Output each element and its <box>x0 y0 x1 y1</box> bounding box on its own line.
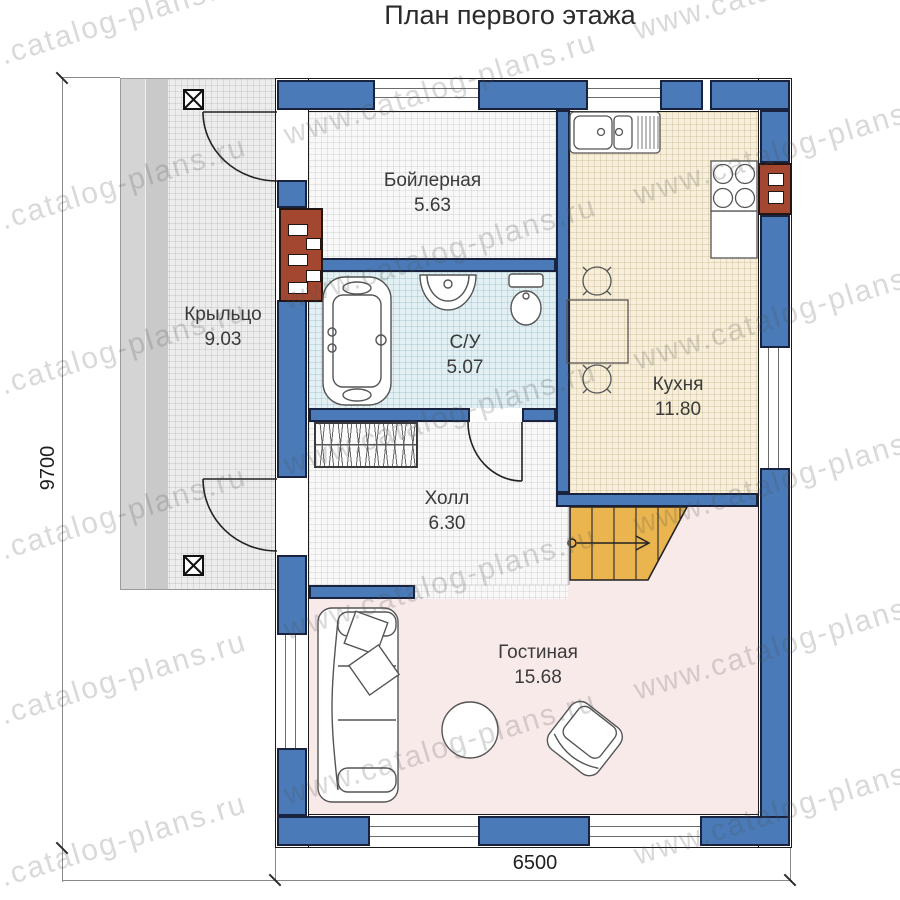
room-area: 9.03 <box>148 327 298 352</box>
window <box>588 97 660 98</box>
wall-segment <box>478 80 588 110</box>
room-area: 5.63 <box>340 193 525 218</box>
wall-interior-kitchen-stairs <box>556 493 758 507</box>
window <box>768 348 769 468</box>
chimney-block-left <box>279 208 323 302</box>
dimension-extension <box>62 77 120 78</box>
watermark-text: www.catalog-plans.ru <box>0 787 251 900</box>
wall-segment <box>760 215 790 348</box>
window <box>375 97 478 98</box>
room-name: Гостиная <box>448 640 628 665</box>
wardrobe <box>314 422 418 468</box>
wall-interior-kitchen <box>556 110 570 493</box>
wall-interior-bath-hall <box>522 408 556 422</box>
wall-segment <box>277 180 307 208</box>
room-name: Бойлерная <box>340 168 525 193</box>
room-floor-kitchen <box>570 112 758 493</box>
wall-segment <box>710 80 790 110</box>
window <box>375 88 478 89</box>
dimension-label-width: 6500 <box>495 852 575 876</box>
wall-interior-boiler-bath <box>309 258 556 272</box>
room-area: 11.80 <box>598 397 758 422</box>
room-label-kitchen: Кухня 11.80 <box>598 372 758 422</box>
wall-interior-bath-hall <box>309 408 470 422</box>
dimension-extension <box>275 848 276 882</box>
room-area: 5.07 <box>395 355 535 380</box>
room-label-boiler: Бойлерная 5.63 <box>340 168 525 218</box>
window <box>590 836 700 837</box>
window <box>285 635 286 748</box>
room-label-bathroom: С/У 5.07 <box>395 330 535 380</box>
room-label-hall: Холл 6.30 <box>372 486 522 536</box>
wall-segment <box>478 816 590 846</box>
room-area: 6.30 <box>372 511 522 536</box>
floor-plan-canvas: План первого этажа <box>0 0 900 900</box>
room-floor-living <box>309 599 758 814</box>
room-name: Кухня <box>598 372 758 397</box>
window <box>778 348 779 468</box>
room-name: Крыльцо <box>148 302 298 327</box>
window <box>295 635 296 748</box>
wall-segment <box>660 80 703 110</box>
wall-segment <box>277 816 370 846</box>
wall-segment <box>760 110 790 163</box>
wall-segment <box>277 80 375 110</box>
chimney-block-right <box>758 163 792 215</box>
room-area: 15.68 <box>448 665 628 690</box>
room-floor-living-stair-bay <box>568 507 758 599</box>
room-label-living: Гостиная 15.68 <box>448 640 628 690</box>
wall-segment <box>277 555 307 635</box>
watermark-text: www.catalog-plans.ru <box>0 625 251 753</box>
window <box>370 826 478 827</box>
wall-segment <box>700 816 790 846</box>
wall-segment <box>760 468 790 846</box>
window <box>590 826 700 827</box>
room-name: С/У <box>395 330 535 355</box>
porch-step-strip <box>121 79 145 589</box>
window <box>370 836 478 837</box>
room-label-porch: Крыльцо 9.03 <box>148 302 298 352</box>
wall-segment <box>277 748 307 816</box>
room-name: Холл <box>372 486 522 511</box>
plan-title: План первого этажа <box>255 0 765 31</box>
dimension-label-height: 9700 <box>37 438 63 498</box>
dimension-extension <box>790 848 791 882</box>
room-floor-hall-opening <box>415 585 568 599</box>
window <box>588 88 660 89</box>
wall-interior-hall-living <box>309 585 415 599</box>
dimension-line-horizontal <box>62 880 792 881</box>
